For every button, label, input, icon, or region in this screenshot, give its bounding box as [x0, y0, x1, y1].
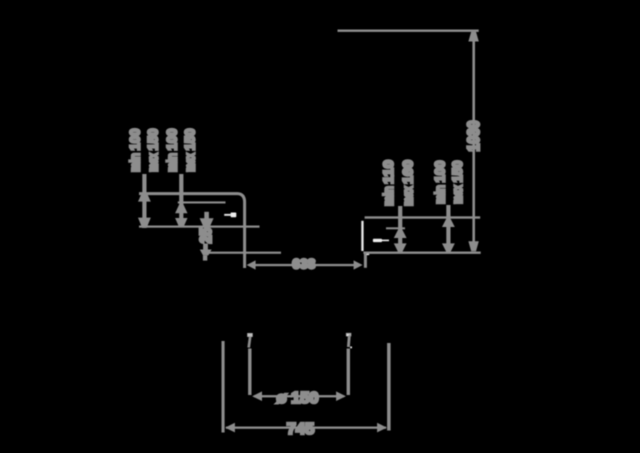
svg-text:100: 100 [164, 128, 180, 150]
svg-text:max: max [449, 185, 465, 204]
svg-text:max: max [399, 186, 415, 206]
svg-text:150: 150 [145, 128, 161, 150]
svg-text:max: max [182, 153, 198, 172]
svg-text:160: 160 [399, 160, 415, 184]
svg-text:25: 25 [198, 227, 215, 243]
svg-text:100: 100 [127, 128, 143, 150]
svg-text:150: 150 [182, 128, 198, 150]
svg-text:min: min [380, 186, 396, 206]
svg-text:1030: 1030 [464, 121, 483, 152]
svg-text:min: min [127, 153, 143, 172]
svg-text:100: 100 [432, 160, 448, 182]
svg-text:110: 110 [380, 160, 396, 184]
svg-text:745: 745 [287, 421, 315, 438]
svg-text:638: 638 [292, 257, 315, 272]
svg-text:max: max [145, 153, 161, 172]
svg-text:min: min [432, 185, 448, 204]
svg-text:ø 150: ø 150 [277, 390, 319, 407]
svg-text:150: 150 [449, 160, 465, 182]
svg-text:min: min [164, 153, 180, 172]
